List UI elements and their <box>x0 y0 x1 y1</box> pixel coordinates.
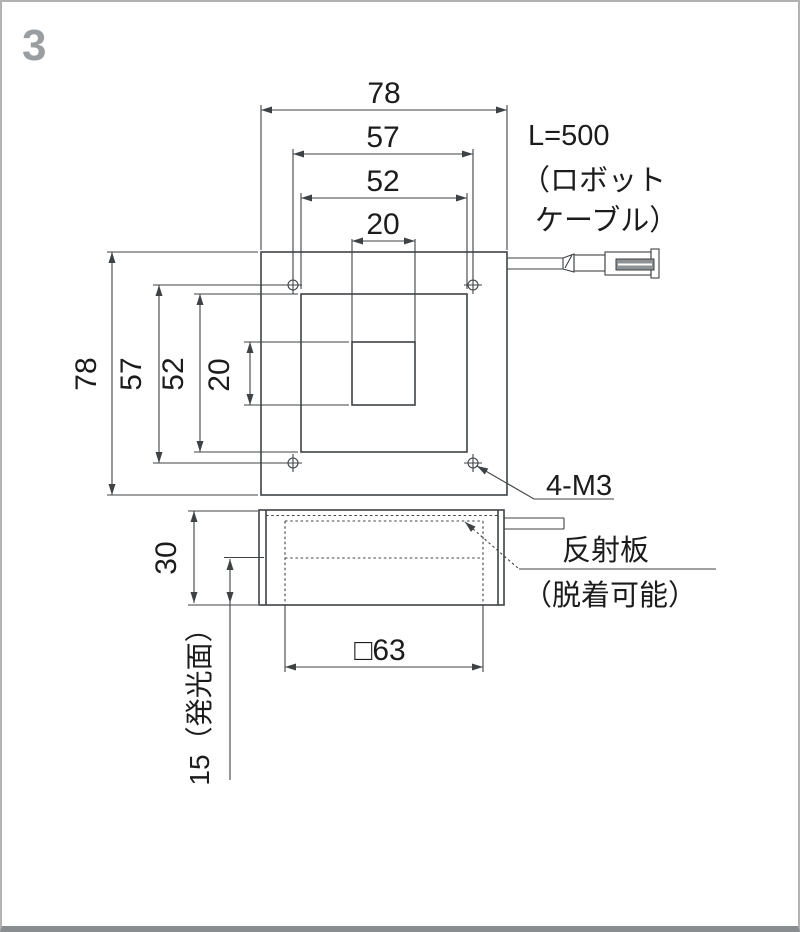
reflector-frame-outline <box>301 294 467 452</box>
dim-label-78-top: 78 <box>367 77 400 110</box>
cable-connector <box>507 249 659 278</box>
screw-hole-icon <box>284 454 302 472</box>
side-cable-stub <box>504 518 564 529</box>
cable-lines <box>507 258 563 269</box>
screw-hole-icon <box>284 276 302 294</box>
emitting-window-outline <box>352 342 415 405</box>
cable-note: L=500 （ロボット ケーブル） <box>521 120 678 237</box>
reflector-label: 反射板 <box>562 534 649 567</box>
dim-label-30: 30 <box>150 541 183 574</box>
screw-callout-label: 4-M3 <box>546 470 612 502</box>
dim-label-20-left: 20 <box>203 358 236 391</box>
dim-label-57-left: 57 <box>115 357 148 390</box>
drawing-page: 3 78 57 52 <box>0 0 800 932</box>
front-view <box>261 239 507 495</box>
dim-label-52-left: 52 <box>157 357 190 390</box>
side-dimensions: 30 15（発光面） □63 <box>150 511 483 786</box>
cable-type-label-line2: ケーブル） <box>535 204 678 237</box>
screw-hole-icon <box>464 454 482 472</box>
window-extension-lines <box>352 239 415 342</box>
dim-20-extensions <box>244 342 349 405</box>
dim-label-57-top: 57 <box>366 121 399 154</box>
left-dimensions: 78 57 52 20 <box>70 252 349 495</box>
cable-ferrule <box>563 254 574 272</box>
technical-drawing: 3 78 57 52 <box>2 2 800 932</box>
dim-label-20-top: 20 <box>366 208 399 241</box>
reflector-callout: 反射板 （脱着可能） <box>465 522 716 612</box>
connector-neck <box>574 255 605 271</box>
cable-length-label: L=500 <box>528 120 609 152</box>
reflector-hidden-outline <box>285 521 483 605</box>
dim-label-78-left: 78 <box>70 357 103 390</box>
dim-label-15-emitting-surface: 15（発光面） <box>184 614 215 785</box>
cable-type-label-line1: （ロボット <box>521 165 666 197</box>
reflector-detachable-label: （脱着可能） <box>523 579 697 612</box>
dim-label-square-63: □63 <box>354 634 406 667</box>
page-number: 3 <box>22 21 46 70</box>
dim-label-52-top: 52 <box>366 165 399 198</box>
side-view <box>259 510 564 605</box>
top-dimensions: 78 57 52 20 <box>261 77 507 289</box>
screw-callout: 4-M3 <box>477 466 614 502</box>
